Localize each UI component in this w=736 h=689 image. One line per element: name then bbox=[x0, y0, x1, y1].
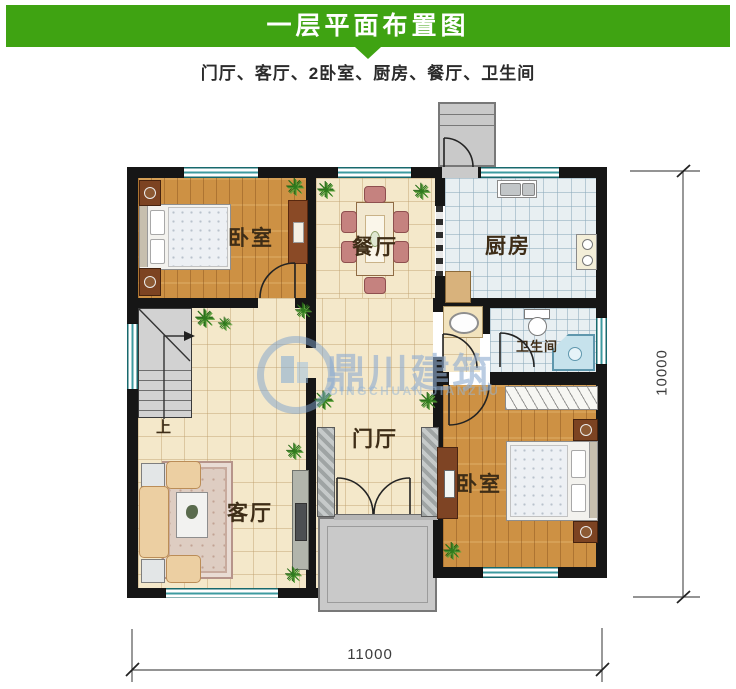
nightstand bbox=[573, 419, 598, 441]
sliding-door-kitchen bbox=[436, 206, 443, 276]
window-bathroom bbox=[596, 317, 607, 365]
table-decor bbox=[186, 505, 198, 519]
entrance-pillar-left bbox=[317, 427, 335, 517]
wall-bedroom2-top-stub bbox=[433, 372, 449, 385]
coffee-table bbox=[176, 492, 208, 538]
wardrobe-door bbox=[293, 222, 304, 243]
tv-cabinet bbox=[437, 447, 458, 519]
dining-chair bbox=[341, 211, 357, 233]
bed bbox=[506, 441, 598, 521]
staircase bbox=[138, 308, 192, 418]
wall-bedroom1-bottom-a bbox=[127, 298, 258, 308]
side-table bbox=[141, 463, 165, 487]
plant-icon bbox=[286, 442, 304, 463]
tv bbox=[444, 470, 455, 498]
plant-icon bbox=[286, 177, 304, 199]
window-bedroom2 bbox=[482, 567, 559, 578]
room-label-living: 客厅 bbox=[227, 497, 273, 527]
nightstand bbox=[139, 180, 161, 206]
toilet-bowl bbox=[528, 317, 547, 336]
header-pointer-triangle bbox=[355, 47, 381, 59]
porch-step-line bbox=[440, 125, 494, 126]
wall-hall-right-a bbox=[433, 298, 443, 312]
tv-cabinet bbox=[292, 470, 309, 570]
stair-steps bbox=[139, 361, 191, 417]
plant-icon bbox=[295, 302, 312, 322]
window-bedroom1 bbox=[183, 167, 259, 178]
plant-icon bbox=[419, 391, 437, 413]
room-label-bedroom-tl: 卧室 bbox=[228, 222, 274, 252]
washbasin bbox=[449, 312, 479, 334]
dimension-width: 11000 bbox=[280, 646, 460, 663]
sink-basin bbox=[500, 183, 521, 196]
kitchen-sink bbox=[497, 180, 537, 198]
wardrobe bbox=[288, 200, 308, 264]
bed-pillow bbox=[150, 239, 165, 264]
main-entry-porch bbox=[318, 517, 437, 612]
plant-icon bbox=[443, 541, 461, 563]
window-living bbox=[165, 588, 279, 598]
room-list-subtitle: 门厅、客厅、2卧室、厨房、餐厅、卫生间 bbox=[0, 59, 736, 84]
dimension-height: 10000 bbox=[654, 318, 671, 428]
kitchen-entry-porch bbox=[438, 102, 496, 167]
stove bbox=[576, 234, 597, 270]
dining-chair bbox=[364, 277, 386, 294]
washbasin-counter bbox=[443, 306, 483, 338]
nightstand bbox=[573, 521, 598, 543]
plant-icon bbox=[314, 390, 334, 414]
page-title: 一层平面布置图 bbox=[6, 5, 730, 47]
plant-icon bbox=[195, 308, 215, 332]
room-label-bedroom-br: 卧室 bbox=[456, 468, 502, 498]
room-label-dining: 餐厅 bbox=[352, 231, 398, 261]
dining-chair bbox=[364, 186, 386, 203]
bed-headboard bbox=[589, 442, 597, 518]
window-dining bbox=[337, 167, 412, 178]
armchair bbox=[166, 461, 201, 489]
plant-icon bbox=[285, 566, 302, 586]
dining-chair bbox=[393, 211, 409, 233]
stove-burner bbox=[582, 239, 593, 250]
tv bbox=[295, 503, 307, 541]
nightstand bbox=[139, 268, 161, 296]
room-label-hall: 门厅 bbox=[352, 423, 398, 453]
bed-blanket bbox=[510, 445, 568, 517]
window-kitchen bbox=[480, 167, 560, 178]
bed-pillow bbox=[571, 450, 586, 478]
sofa bbox=[139, 486, 169, 558]
window-stairs bbox=[127, 323, 138, 390]
plant-icon bbox=[218, 316, 232, 333]
bed-headboard bbox=[140, 205, 148, 267]
plant-icon bbox=[413, 182, 431, 203]
side-table bbox=[141, 559, 165, 583]
armchair bbox=[166, 555, 201, 583]
kitchen-cabinet bbox=[445, 271, 471, 303]
stove-burner bbox=[582, 255, 593, 266]
bed-pillow bbox=[150, 210, 165, 235]
wardrobe-closet bbox=[505, 386, 598, 410]
stairs-up-label: 上 bbox=[156, 416, 171, 437]
kitchen-door-gap bbox=[442, 167, 478, 178]
porch-step-line bbox=[440, 114, 494, 115]
wall-dining-kitchen-a bbox=[435, 178, 445, 206]
plant-icon bbox=[317, 180, 335, 202]
bed-blanket bbox=[168, 207, 228, 267]
room-label-bathroom: 卫生间 bbox=[516, 336, 558, 355]
bed bbox=[139, 204, 231, 270]
wall-hall-right-b bbox=[433, 357, 443, 372]
wall-bathroom-bottom bbox=[490, 372, 607, 385]
bed-pillow bbox=[571, 484, 586, 512]
porch-inner-line bbox=[327, 526, 428, 603]
room-label-kitchen: 厨房 bbox=[485, 230, 531, 260]
floor-plan-page: 一层平面布置图 门厅、客厅、2卧室、厨房、餐厅、卫生间 bbox=[0, 0, 736, 689]
header-bar: 一层平面布置图 bbox=[6, 5, 730, 47]
sink-basin bbox=[522, 183, 535, 196]
